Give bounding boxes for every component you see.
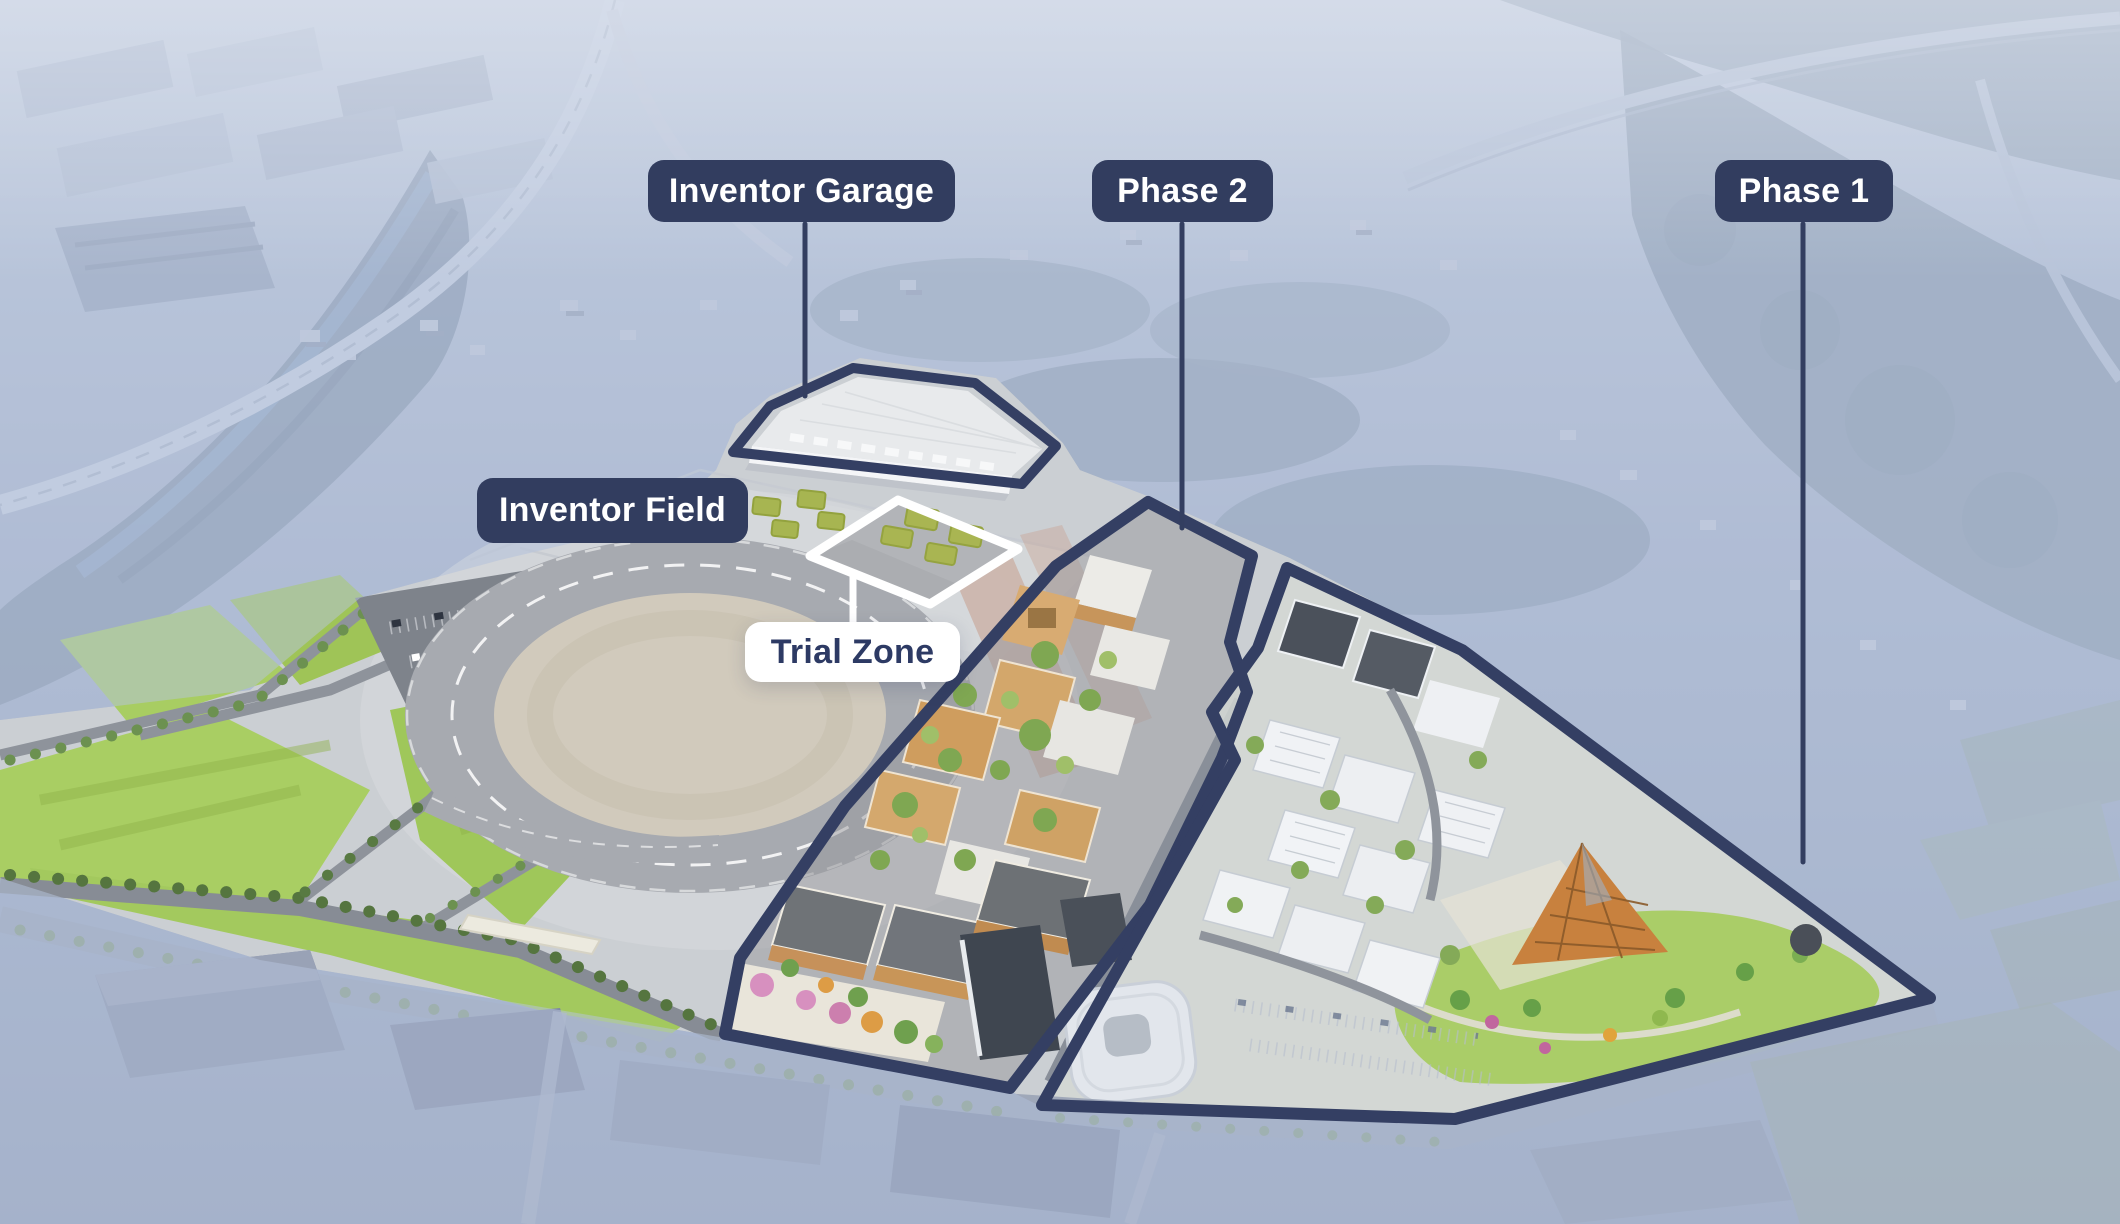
label-phase-2: Phase 2 — [1092, 160, 1273, 222]
label-inventor-garage: Inventor Garage — [648, 160, 955, 222]
label-inventor-garage-text: Inventor Garage — [669, 172, 934, 211]
aerial-masterplan-figure: Inventor Garage Phase 2 Phase 1 Inventor… — [0, 0, 2120, 1224]
label-phase-1-text: Phase 1 — [1739, 172, 1870, 211]
label-phase-1: Phase 1 — [1715, 160, 1893, 222]
label-trial-zone: Trial Zone — [745, 622, 960, 682]
label-trial-zone-text: Trial Zone — [771, 633, 935, 672]
label-phase-2-text: Phase 2 — [1117, 172, 1248, 211]
label-inventor-field: Inventor Field — [477, 478, 748, 543]
label-inventor-field-text: Inventor Field — [499, 491, 726, 530]
